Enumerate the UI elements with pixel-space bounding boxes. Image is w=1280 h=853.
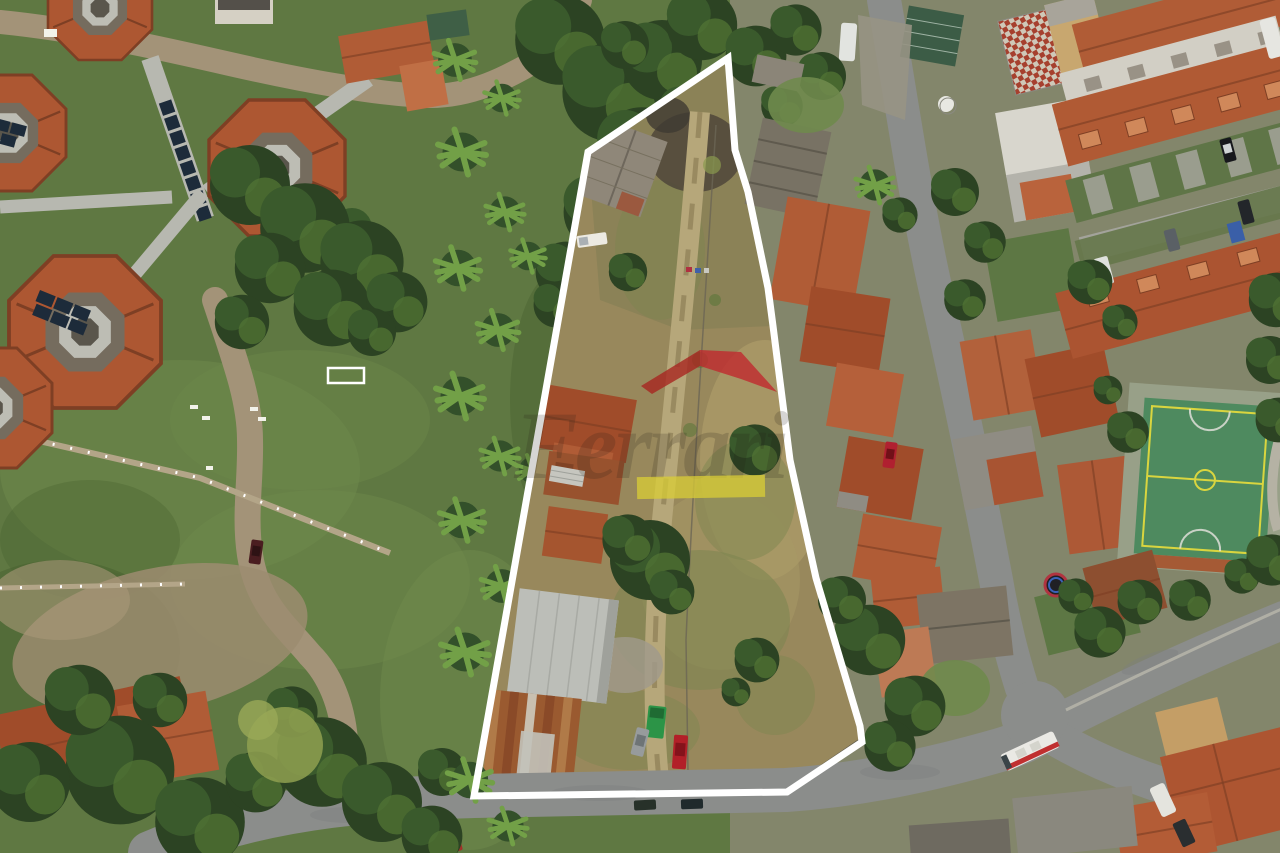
tile-roof — [836, 436, 923, 520]
green-roof-shed — [426, 9, 469, 40]
parked-car — [681, 799, 703, 810]
red-car-plot — [672, 735, 688, 770]
watermark-logo-bar — [637, 475, 765, 499]
aerial-photo: Ferrari — [0, 0, 1280, 853]
aerial-photo-canvas: Ferrari — [0, 0, 1280, 853]
white-van-top — [839, 22, 858, 61]
tile-roof-house — [542, 506, 608, 564]
gray-roof-house — [952, 426, 1043, 511]
tile-roof — [826, 363, 904, 438]
driveway — [858, 15, 912, 120]
warehouse-roof — [507, 588, 619, 703]
tile-roof — [800, 286, 891, 374]
parked-car — [634, 799, 656, 810]
